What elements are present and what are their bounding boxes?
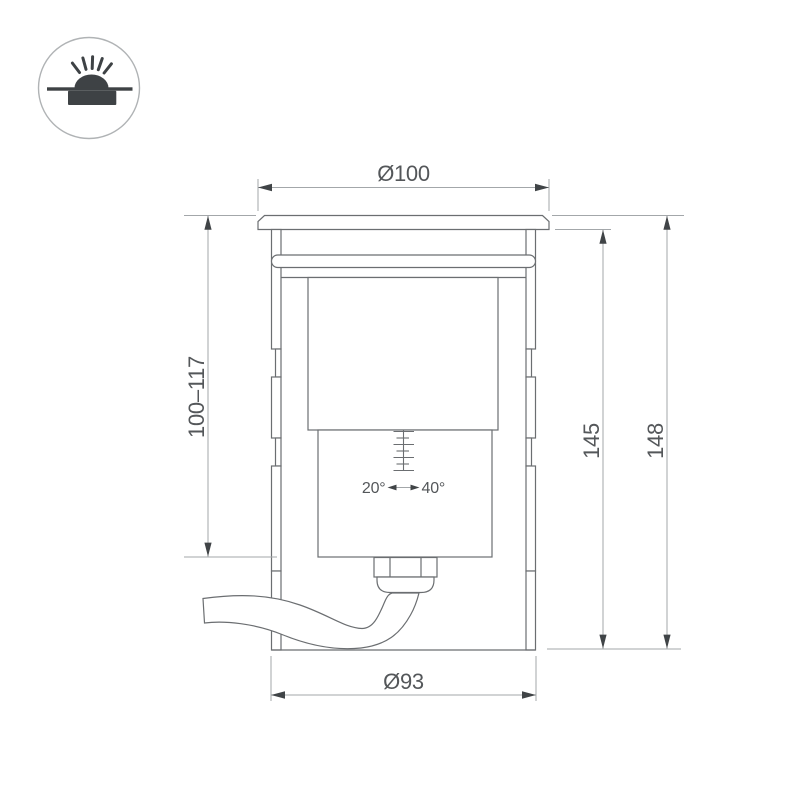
dim-arrow-down-icon <box>204 543 211 557</box>
luminaire-drawing: 20° 40° <box>203 216 549 651</box>
dim-arrow-up-icon <box>204 216 211 230</box>
dim-arrow-up-icon <box>663 216 670 230</box>
seal-ring-bead <box>272 255 536 268</box>
top-diameter-value: Ø100 <box>377 161 430 186</box>
tilt-max-label: 40° <box>422 480 446 497</box>
flange-trim-ring <box>258 216 549 230</box>
supply-cable <box>203 593 419 649</box>
optical-module <box>308 278 498 431</box>
product-dimensions-page: 20° 40° Ø100 <box>0 0 800 800</box>
adjustable-module <box>318 430 492 557</box>
dim-arrow-down-icon <box>599 635 606 649</box>
recess-depth-value: 100–117 <box>184 356 209 438</box>
dim-arrow-right-icon <box>522 691 536 698</box>
dim-arrow-left-icon <box>258 184 272 191</box>
tilt-min-label: 20° <box>362 480 386 497</box>
right-wall-clips <box>526 230 536 651</box>
height-total-value: 148 <box>643 423 668 459</box>
cable-gland <box>374 558 437 593</box>
recessed-body-icon <box>68 91 116 105</box>
height-inner-value: 145 <box>579 423 604 459</box>
inground-light-icon <box>39 38 140 139</box>
dim-arrow-up-icon <box>599 230 606 244</box>
ground-line-icon <box>47 87 133 90</box>
dimension-height-total: 148 <box>547 216 684 650</box>
dim-arrow-down-icon <box>663 635 670 649</box>
dimension-bottom-diameter: Ø93 <box>271 656 536 701</box>
bottom-diameter-value: Ø93 <box>383 669 424 694</box>
dimension-recess-depth: 100–117 <box>184 216 277 558</box>
dim-arrow-right-icon <box>535 184 549 191</box>
gland-hex-nut <box>374 558 437 578</box>
dim-arrow-left-icon <box>271 691 285 698</box>
dimension-top-diameter: Ø100 <box>258 161 549 211</box>
technical-drawing-canvas: 20° 40° Ø100 <box>0 0 800 800</box>
gland-dome <box>377 577 434 593</box>
left-wall-clips <box>272 230 282 651</box>
dimension-height-inner: 145 <box>555 230 611 650</box>
